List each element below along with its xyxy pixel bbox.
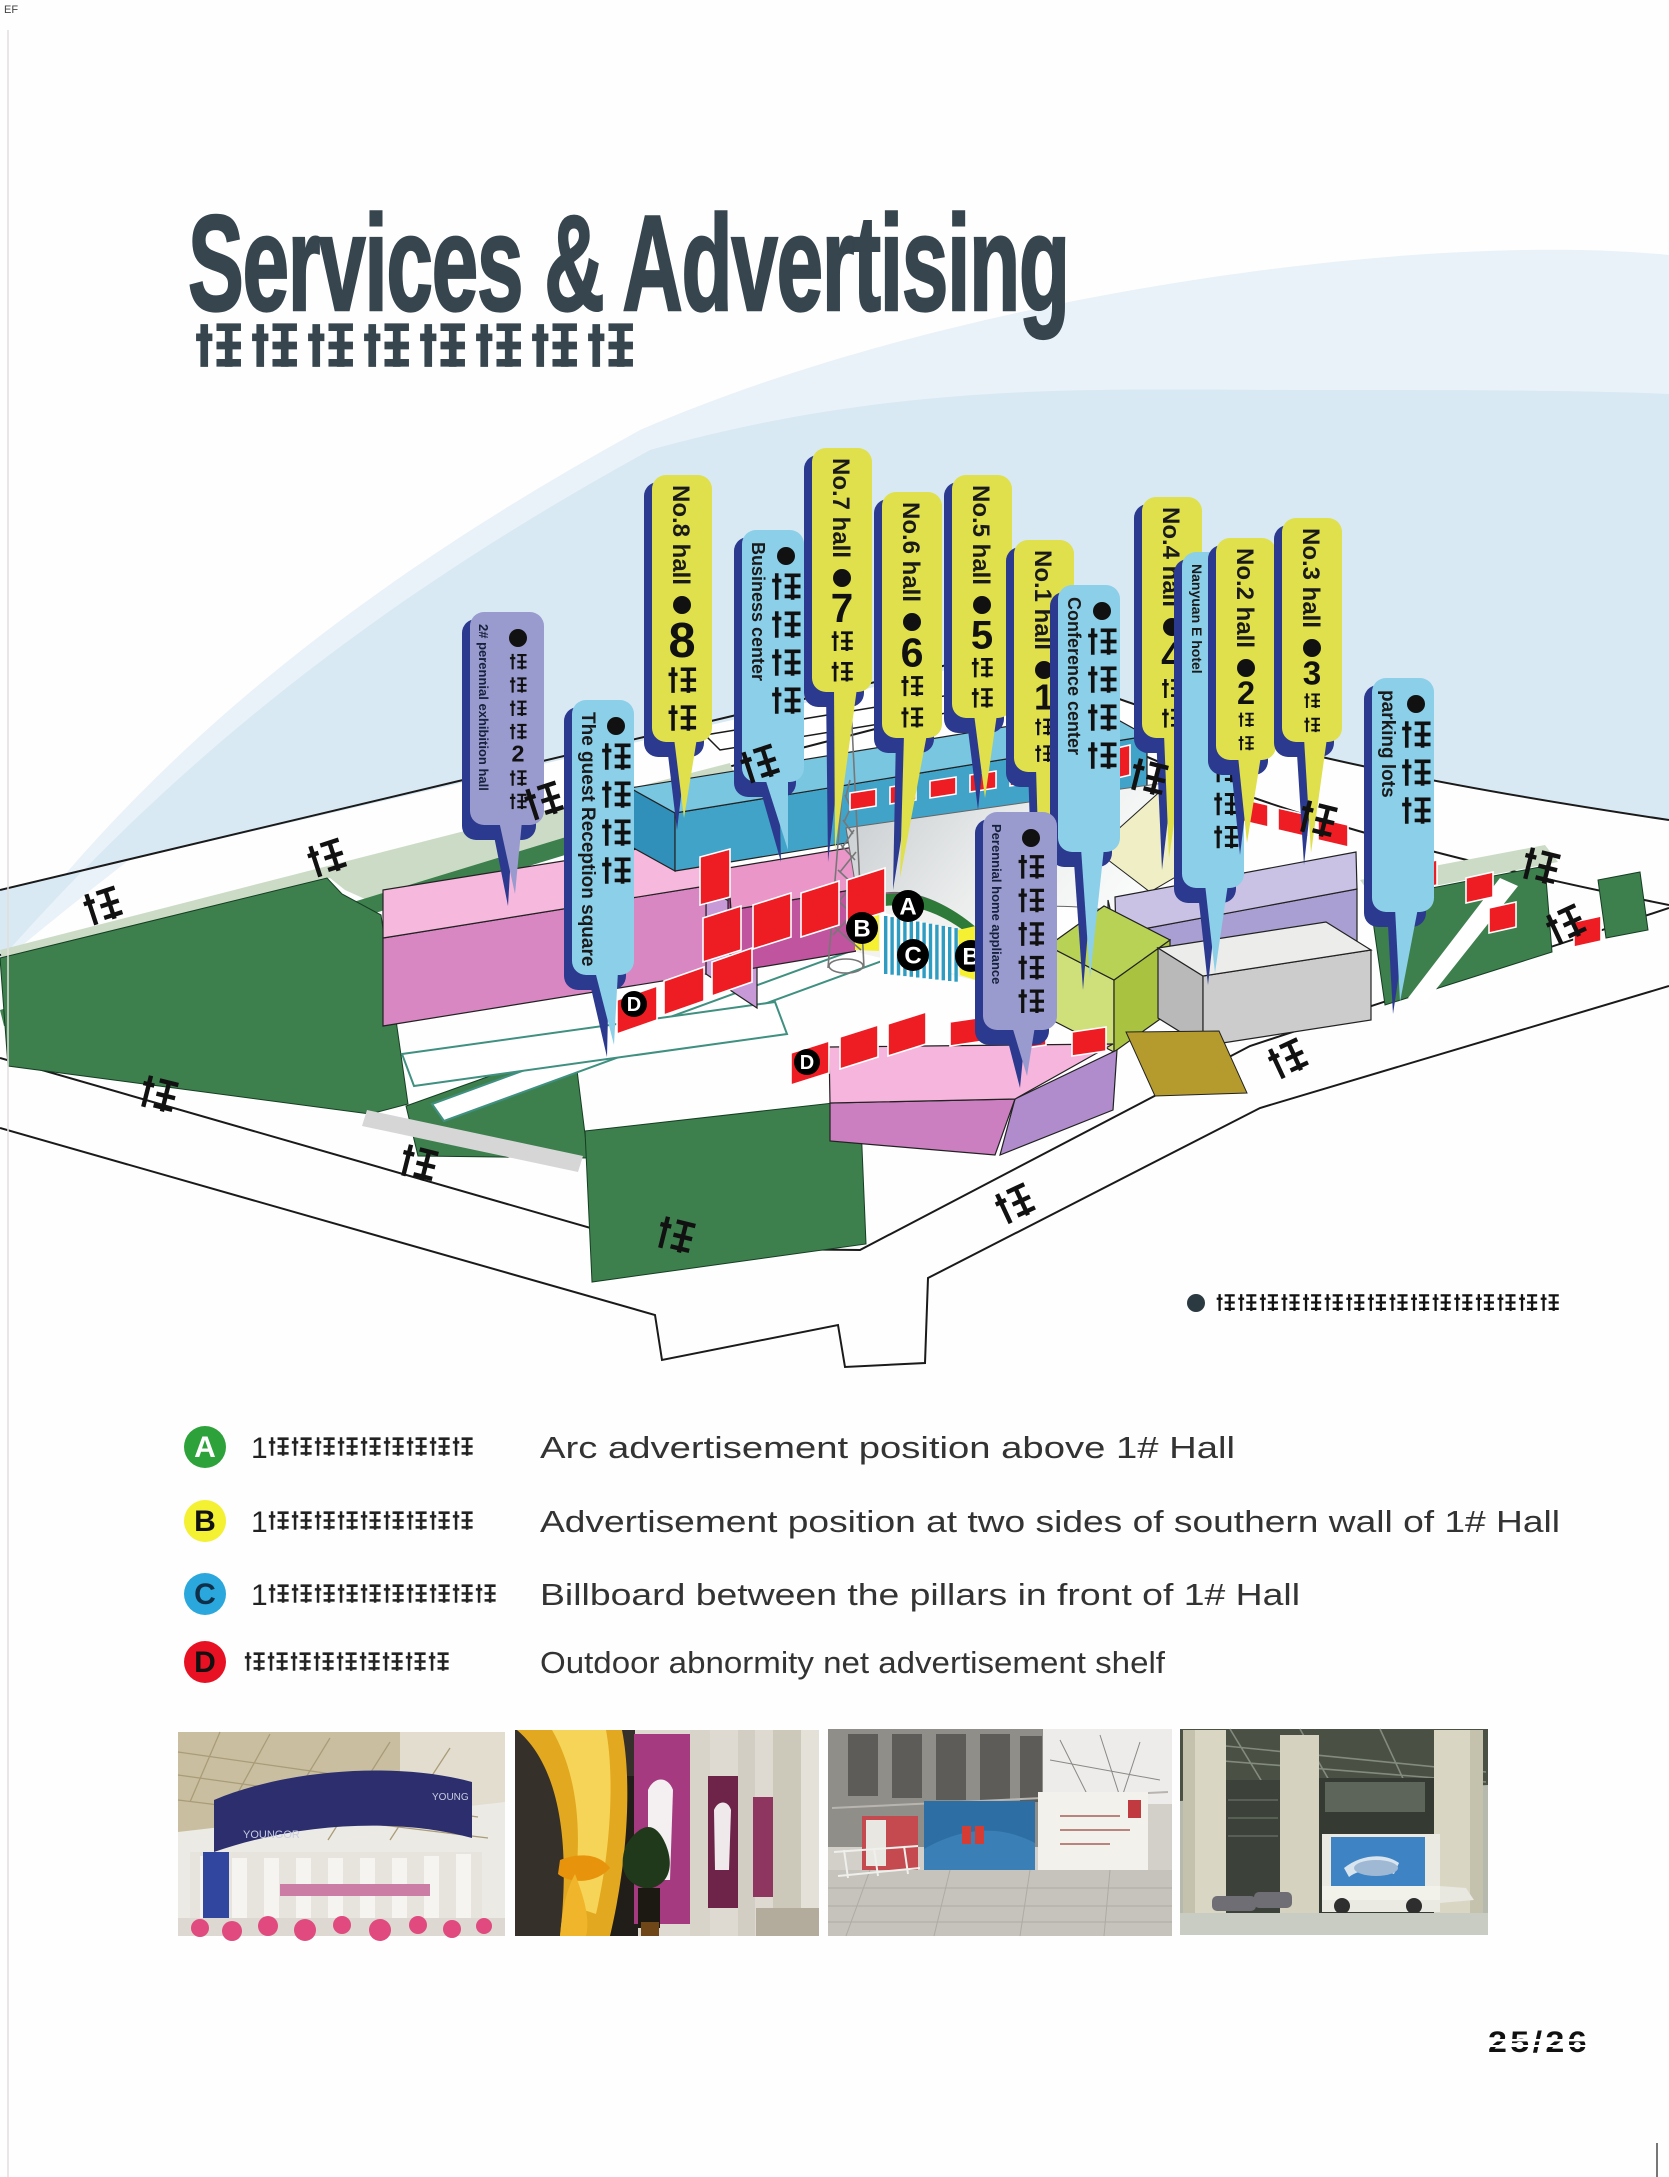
svg-text:Business center: Business center xyxy=(748,542,768,681)
svg-text:3: 3 xyxy=(1303,656,1321,693)
svg-text:C: C xyxy=(904,942,921,969)
svg-text:Billboard between the pillars: Billboard between the pillars in front o… xyxy=(540,1577,1300,1612)
svg-text:A: A xyxy=(899,893,916,920)
svg-text:Arc advertisement position abo: Arc advertisement position above 1# Hall xyxy=(540,1430,1235,1465)
svg-text:No.6 hall: No.6 hall xyxy=(897,502,924,602)
svg-text:D: D xyxy=(627,994,641,1016)
svg-text:No.5 hall: No.5 hall xyxy=(967,485,994,585)
svg-text:The guest Reception square: The guest Reception square xyxy=(577,712,598,966)
svg-text:25/26: 25/26 xyxy=(1488,2026,1590,2059)
svg-text:B: B xyxy=(194,1505,216,1538)
svg-text:2: 2 xyxy=(1237,675,1255,711)
svg-text:Nanyuan E hotel: Nanyuan E hotel xyxy=(1189,564,1205,674)
svg-text:YOUNGOR: YOUNGOR xyxy=(243,1829,300,1841)
svg-text:1: 1 xyxy=(251,1432,268,1465)
svg-text:Conference center: Conference center xyxy=(1064,597,1084,755)
svg-text:No.8 hall: No.8 hall xyxy=(667,485,694,585)
svg-text:No.2 hall: No.2 hall xyxy=(1231,548,1258,648)
svg-text:1: 1 xyxy=(251,1579,268,1612)
svg-text:Outdoor abnormity net advertis: Outdoor abnormity net advertisement shel… xyxy=(540,1645,1165,1680)
svg-text:Perennial home appliance: Perennial home appliance xyxy=(989,824,1004,984)
svg-text:EF: EF xyxy=(4,4,18,16)
svg-text:B: B xyxy=(853,915,870,942)
svg-text:Services & Advertising: Services & Advertising xyxy=(188,187,1069,339)
svg-text:A: A xyxy=(194,1431,216,1464)
svg-text:6: 6 xyxy=(901,630,924,676)
svg-text:2# perennial exhibition hal: 2# perennial exhibition hall xyxy=(476,624,491,791)
svg-text:No.7 hall: No.7 hall xyxy=(827,458,854,558)
svg-text:D: D xyxy=(800,1052,814,1074)
svg-text:C: C xyxy=(194,1578,216,1611)
svg-text:YOUNG: YOUNG xyxy=(432,1792,469,1803)
svg-text:Advertisement position at two: Advertisement position at two sides of s… xyxy=(540,1504,1560,1539)
svg-text:2: 2 xyxy=(512,741,525,767)
svg-text:1: 1 xyxy=(251,1506,268,1539)
svg-text:D: D xyxy=(194,1646,216,1679)
svg-text:5: 5 xyxy=(971,613,993,657)
svg-text:8: 8 xyxy=(668,614,695,668)
svg-text:parking lots: parking lots xyxy=(1377,690,1398,798)
svg-text:7: 7 xyxy=(831,585,853,631)
svg-text:No.3 hall: No.3 hall xyxy=(1297,528,1324,628)
